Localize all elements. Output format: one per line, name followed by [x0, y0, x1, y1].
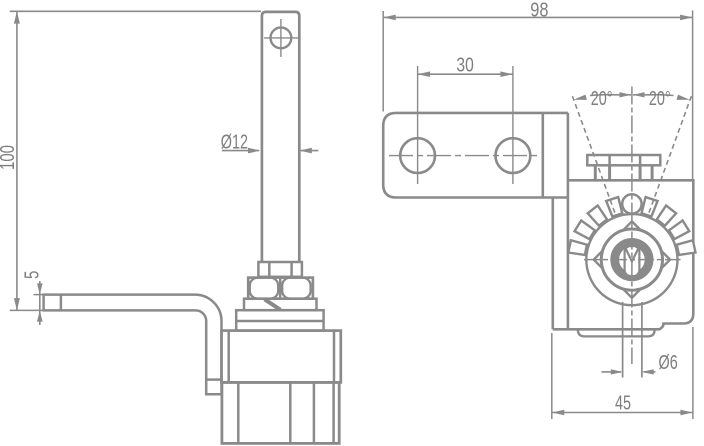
- svg-text:30: 30: [456, 54, 473, 76]
- svg-text:Ø12: Ø12: [221, 130, 248, 153]
- svg-text:98: 98: [530, 0, 548, 21]
- svg-text:20°: 20°: [649, 87, 671, 110]
- svg-text:20°: 20°: [591, 87, 613, 110]
- svg-text:100: 100: [0, 145, 18, 170]
- svg-text:Ø6: Ø6: [659, 351, 678, 374]
- svg-text:5: 5: [20, 271, 43, 279]
- svg-text:45: 45: [615, 391, 631, 414]
